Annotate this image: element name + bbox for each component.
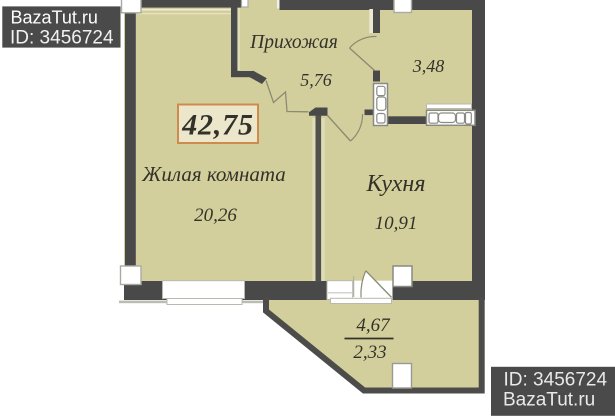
svg-text:20,26: 20,26 xyxy=(194,205,237,226)
svg-text:BazaTut.ru: BazaTut.ru xyxy=(11,8,98,28)
svg-text:ID: 3456724: ID: 3456724 xyxy=(10,28,114,49)
svg-text:5,76: 5,76 xyxy=(300,70,332,90)
svg-text:BazaTut.ru: BazaTut.ru xyxy=(503,390,595,411)
svg-text:3,48: 3,48 xyxy=(412,56,445,76)
svg-text:Прихожая: Прихожая xyxy=(249,32,338,53)
svg-text:Жилая комната: Жилая комната xyxy=(141,162,286,186)
svg-text:10,91: 10,91 xyxy=(375,213,418,234)
svg-text:2,33: 2,33 xyxy=(353,342,386,363)
svg-text:4,67: 4,67 xyxy=(356,315,391,336)
svg-text:42,75: 42,75 xyxy=(181,109,254,142)
svg-text:ID: 3456724: ID: 3456724 xyxy=(504,370,608,391)
svg-text:Кухня: Кухня xyxy=(366,171,426,197)
